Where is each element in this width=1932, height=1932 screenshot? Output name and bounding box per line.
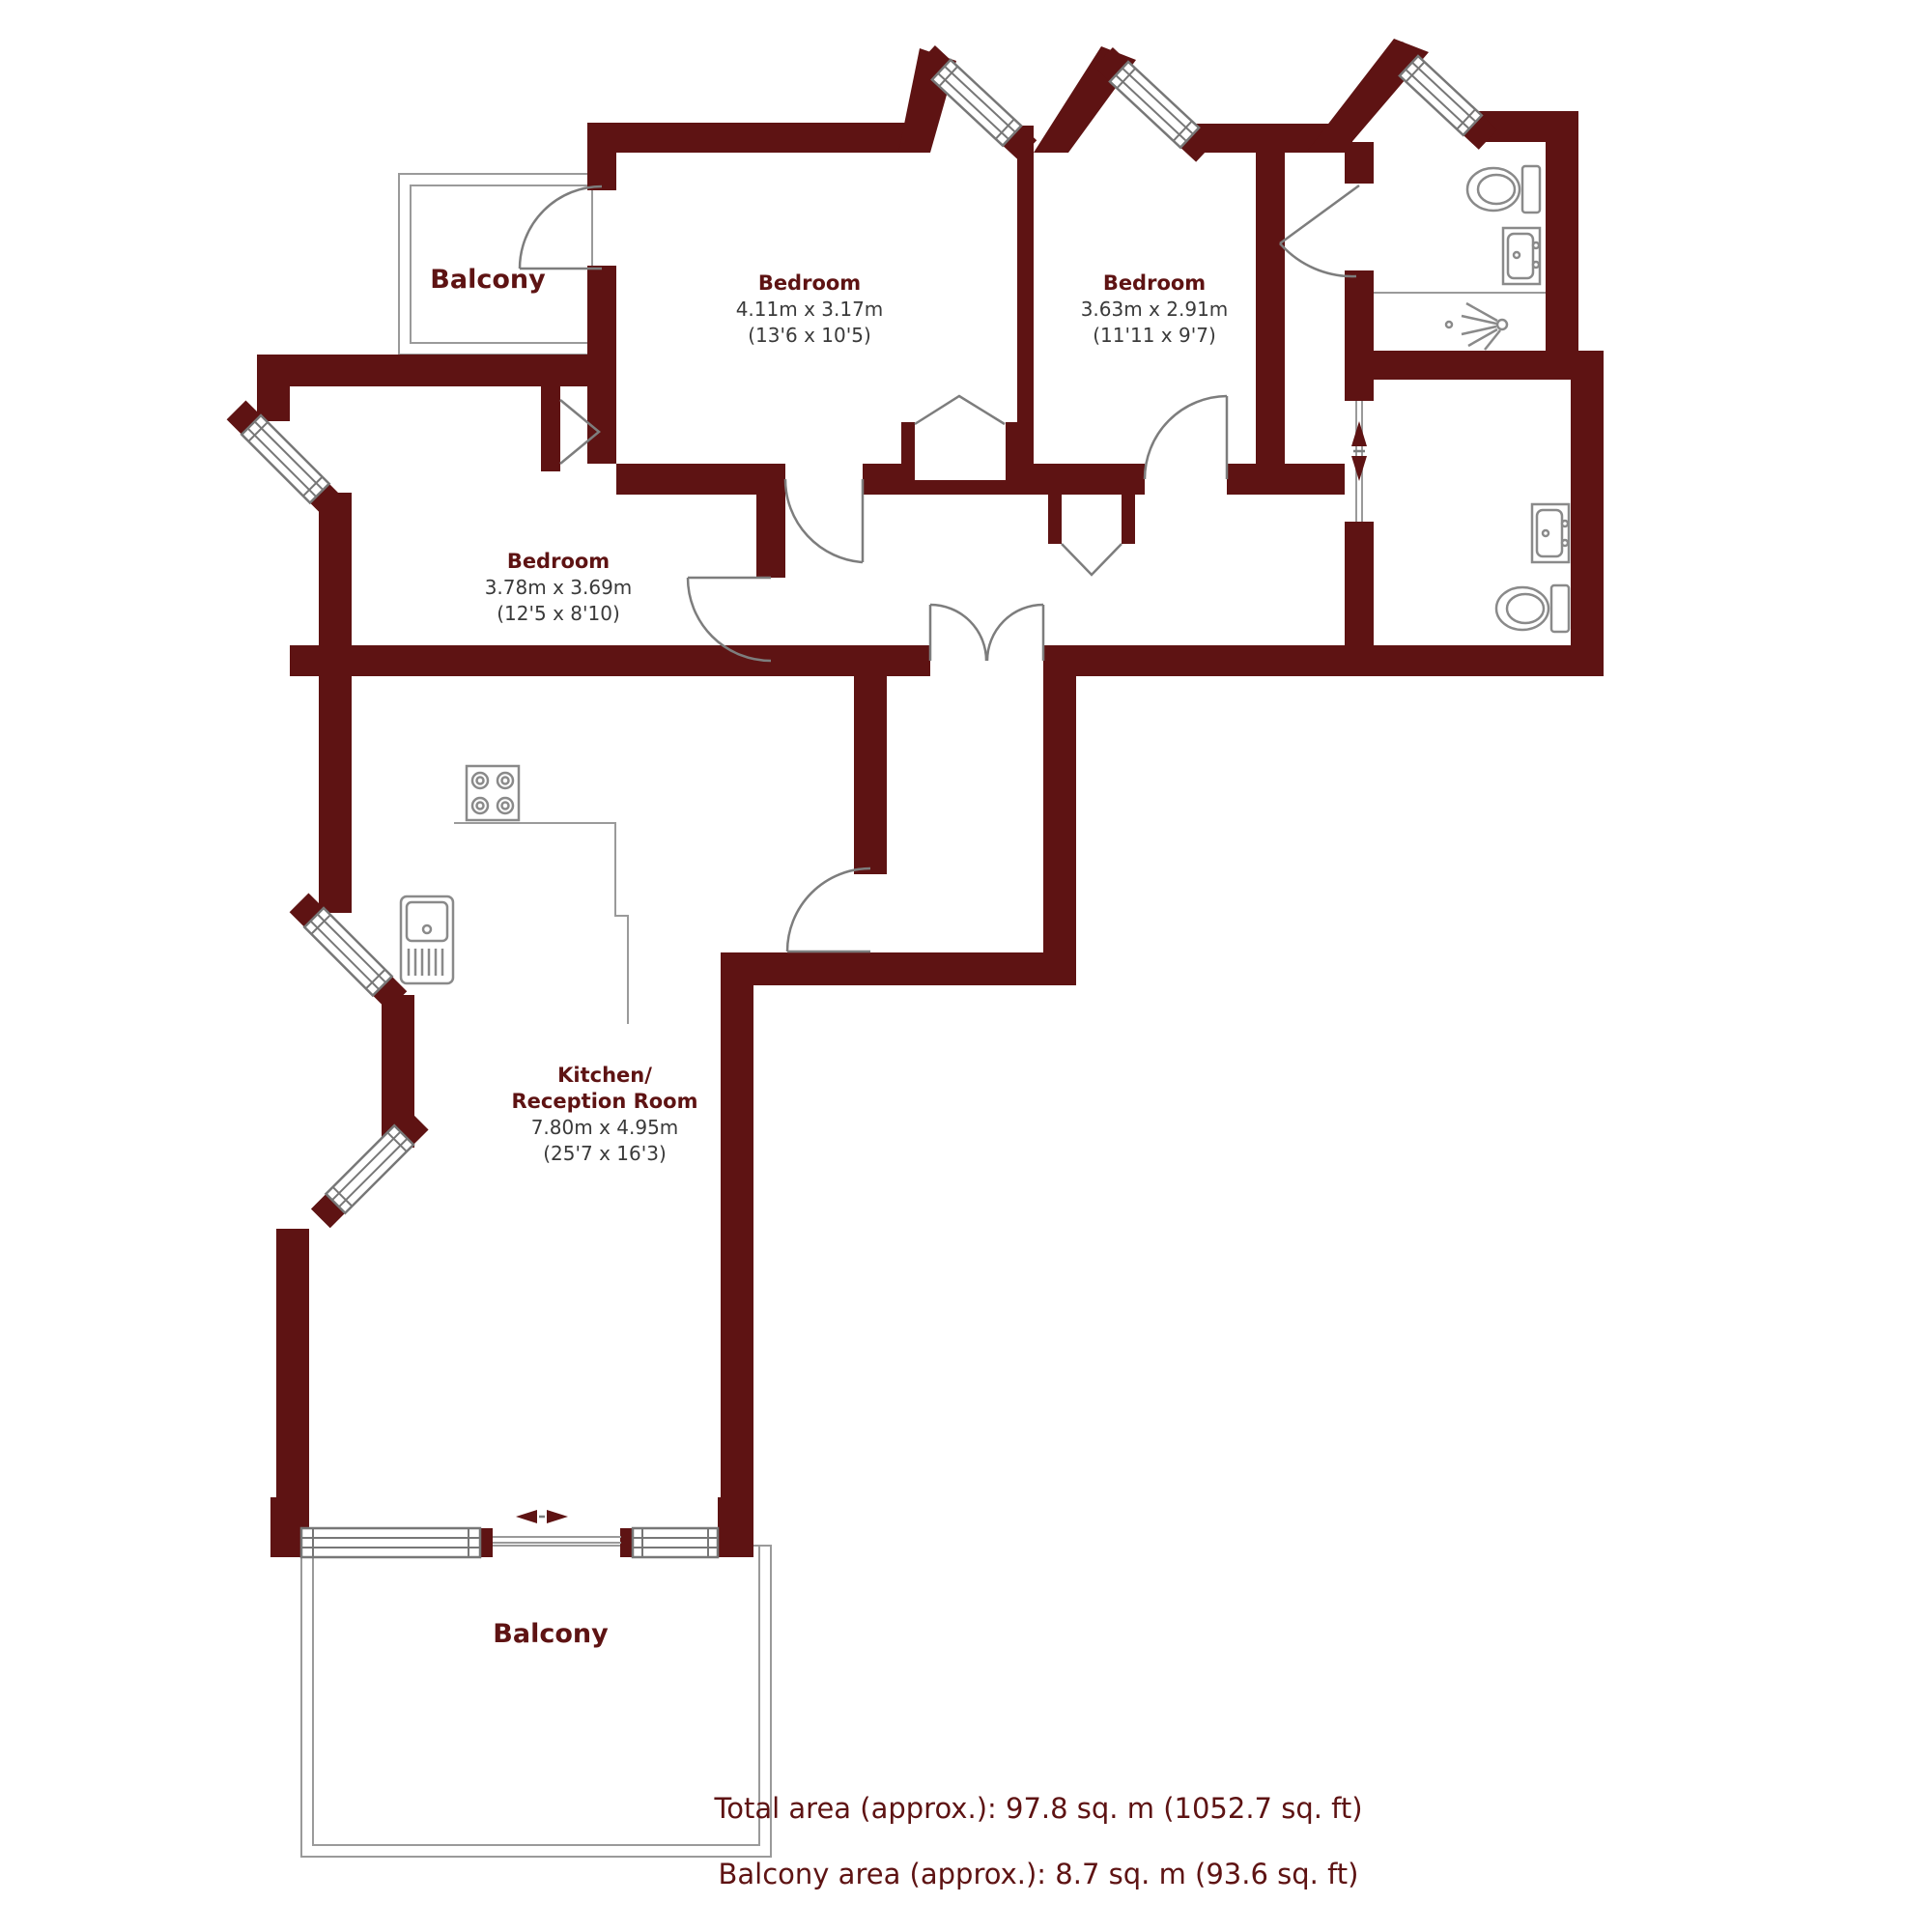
sliding-door-balcony-icon bbox=[493, 1510, 621, 1543]
room-dim-metric: 3.78m x 3.69m bbox=[485, 576, 633, 599]
room-dim-metric: 4.11m x 3.17m bbox=[736, 298, 884, 321]
room-name: Bedroom bbox=[507, 550, 610, 573]
window-bottom-left-icon bbox=[301, 1528, 480, 1557]
room-label-bedroom-3: Bedroom 3.78m x 3.69m (12'5 x 8'10) bbox=[485, 550, 633, 625]
shower-head-icon bbox=[1374, 293, 1546, 350]
balcony-top-left-label: Balcony bbox=[430, 265, 546, 295]
door-arcs bbox=[520, 185, 1359, 952]
toilet-icon bbox=[1496, 585, 1569, 632]
room-dim-imperial: (12'5 x 8'10) bbox=[497, 602, 620, 625]
basin-icon bbox=[1503, 228, 1540, 284]
balcony-bottom-label: Balcony bbox=[493, 1619, 609, 1649]
room-label-bedroom-1: Bedroom 4.11m x 3.17m (13'6 x 10'5) bbox=[736, 271, 884, 347]
toilet-icon bbox=[1467, 166, 1540, 213]
basin-icon bbox=[1532, 504, 1569, 562]
room-name-line2: Reception Room bbox=[512, 1090, 698, 1113]
room-label-kitchen-reception: Kitchen/ Reception Room 7.80m x 4.95m (2… bbox=[512, 1064, 698, 1165]
balcony-area-text: Balcony area (approx.): 8.7 sq. m (93.6 … bbox=[719, 1858, 1359, 1890]
balcony-bottom-outline bbox=[301, 1546, 771, 1857]
room-name-line1: Kitchen/ bbox=[557, 1064, 652, 1087]
room-label-bedroom-2: Bedroom 3.63m x 2.91m (11'11 x 9'7) bbox=[1081, 271, 1229, 347]
room-name: Bedroom bbox=[758, 271, 861, 295]
room-dim-imperial: (13'6 x 10'5) bbox=[748, 324, 871, 347]
floorplan-drawing: Bedroom 4.11m x 3.17m (13'6 x 10'5) Bedr… bbox=[0, 0, 1932, 1932]
window-reception-left-icon bbox=[311, 1111, 429, 1229]
window-bottom-right-icon bbox=[633, 1528, 718, 1557]
window-bed2-top-icon bbox=[1094, 47, 1214, 162]
counter-line bbox=[454, 823, 628, 1024]
room-dim-metric: 3.63m x 2.91m bbox=[1081, 298, 1229, 321]
total-area-text: Total area (approx.): 97.8 sq. m (1052.7… bbox=[713, 1792, 1362, 1825]
floorplan-page: Bedroom 4.11m x 3.17m (13'6 x 10'5) Bedr… bbox=[0, 0, 1932, 1932]
window-bathroom-top-icon bbox=[1384, 42, 1497, 150]
room-dim-metric: 7.80m x 4.95m bbox=[531, 1116, 679, 1139]
kitchen-sink-icon bbox=[401, 896, 453, 983]
room-dim-imperial: (11'11 x 9'7) bbox=[1093, 324, 1216, 347]
room-name: Bedroom bbox=[1103, 271, 1206, 295]
hob-icon bbox=[467, 766, 519, 820]
sliding-door-ensuite-icon bbox=[1351, 401, 1367, 522]
room-dim-imperial: (25'7 x 16'3) bbox=[543, 1142, 667, 1165]
